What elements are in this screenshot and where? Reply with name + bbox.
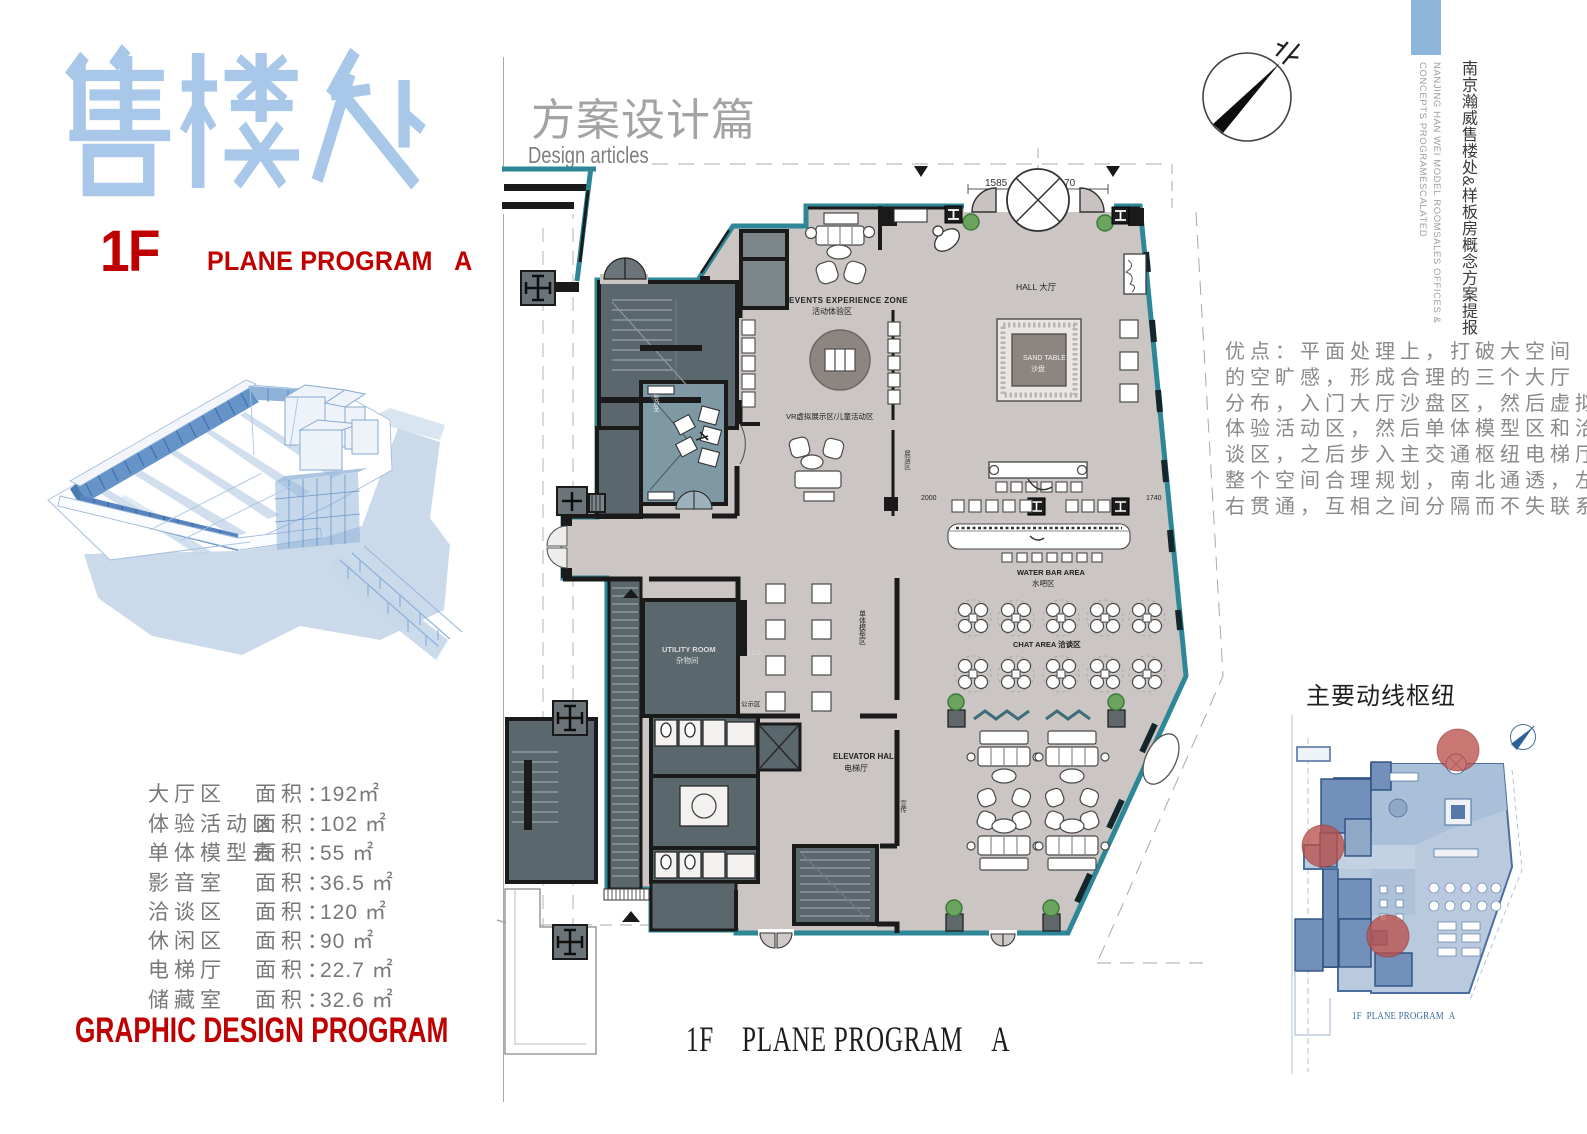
svg-text:VR虚拟展示区/儿童活动区: VR虚拟展示区/儿童活动区 xyxy=(786,411,874,421)
svg-text:WATER BAR AREA: WATER BAR AREA xyxy=(1017,568,1085,577)
svg-text:单体模型区: 单体模型区 xyxy=(859,609,867,645)
svg-text:UTILITY ROOM: UTILITY ROOM xyxy=(662,645,716,654)
svg-text:杂物间: 杂物间 xyxy=(676,655,699,665)
svg-text:活动体验区: 活动体验区 xyxy=(812,306,852,316)
svg-text:2000: 2000 xyxy=(921,495,937,502)
svg-text:ELEVATOR HALL: ELEVATOR HALL xyxy=(833,752,899,761)
svg-text:HALL 大厅: HALL 大厅 xyxy=(1016,282,1057,292)
svg-text:1740: 1740 xyxy=(1146,495,1162,502)
svg-text:LED: LED xyxy=(748,650,761,657)
svg-text:水吧区: 水吧区 xyxy=(1032,578,1055,588)
svg-text:公示区: 公示区 xyxy=(741,700,761,708)
svg-text:电梯厅: 电梯厅 xyxy=(844,763,868,773)
svg-text:EVENTS EXPERIENCE ZONE: EVENTS EXPERIENCE ZONE xyxy=(789,296,908,305)
svg-text:SAND TABLE: SAND TABLE xyxy=(1023,355,1066,362)
svg-text:沙盘: 沙盘 xyxy=(1031,364,1045,373)
svg-text:CHAT AREA 洽谈区: CHAT AREA 洽谈区 xyxy=(1013,639,1081,649)
